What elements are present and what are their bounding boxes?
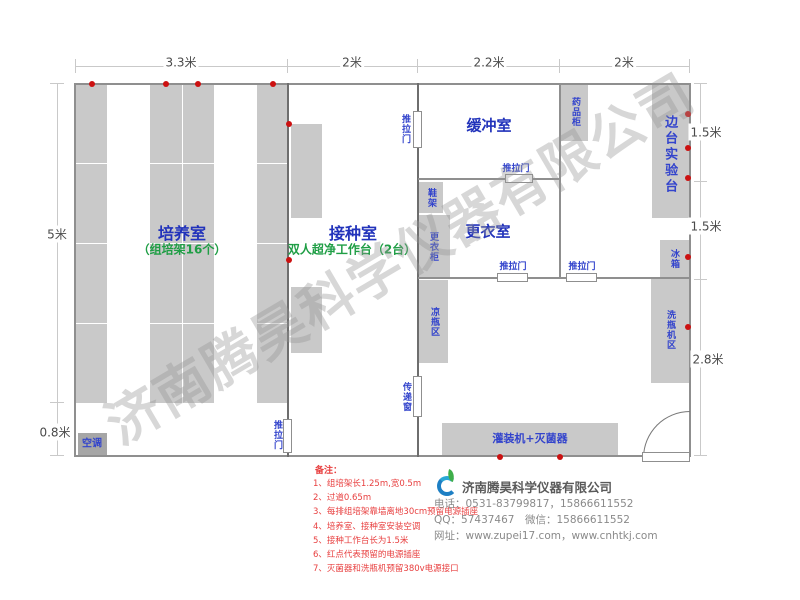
note-item-1: 1、组培架长1.25m,宽0.5m <box>313 477 421 489</box>
sliding-door-top <box>413 111 422 148</box>
power-socket-dot <box>685 111 691 117</box>
power-socket-dot <box>163 81 169 87</box>
wall-buffer-changing <box>418 178 560 180</box>
dim-tick <box>559 59 560 73</box>
note-item-2: 2、过道0.65m <box>313 491 371 503</box>
dim-line-left <box>57 84 58 456</box>
label-shoe-rack: 鞋架 <box>425 188 435 208</box>
wall-left <box>74 83 76 457</box>
wall-buffer-right <box>559 83 561 279</box>
label-sliding-door-top: 推拉门 <box>399 114 409 144</box>
label-sliding-door-changing-left: 推拉门 <box>499 263 526 273</box>
power-socket-dot <box>685 175 691 181</box>
room-sub-cultivation: （组培架16个） <box>138 241 227 258</box>
power-socket-dot <box>685 324 691 330</box>
label-sliding-door-buffer: 推拉门 <box>502 165 529 175</box>
note-item-4: 4、培养室、接种室安装空调 <box>313 520 420 532</box>
company-qq-wechat: QQ：57437467 微信：15866611552 <box>434 512 630 527</box>
company-logo-icon <box>437 470 459 494</box>
power-socket-dot <box>270 81 276 87</box>
power-socket-dot <box>685 145 691 151</box>
entry-door-leaf <box>642 452 690 462</box>
logo-swirl-icon <box>437 476 457 496</box>
dim-tick <box>694 181 707 182</box>
dim-top-4: 2米 <box>612 54 636 71</box>
power-socket-dot <box>286 121 292 127</box>
dim-top-1: 3.3米 <box>163 54 198 71</box>
sliding-door-cultivation <box>283 419 292 453</box>
label-air-conditioner: 空调 <box>82 439 102 450</box>
note-item-7: 7、灭菌器和洗瓶机预留380v电源接口 <box>313 562 459 574</box>
dim-right-3: 2.8米 <box>690 351 725 368</box>
room-label-side-bench: 边台实验台 <box>662 115 676 195</box>
power-socket-dot <box>685 254 691 260</box>
label-fridge: 冰箱 <box>668 249 678 269</box>
dim-tick <box>50 83 64 84</box>
label-wardrobe: 更衣柜 <box>427 232 437 262</box>
notes-title: 备注： <box>315 463 342 476</box>
sliding-door-changing-left <box>497 273 528 282</box>
label-sliding-door-cultivation: 推拉门 <box>271 420 281 450</box>
dim-top-2: 2米 <box>340 54 364 71</box>
room-label-changing: 更衣室 <box>465 221 510 242</box>
label-washer-area: 洗瓶机区 <box>664 310 674 350</box>
note-item-6: 6、红点代表预留的电源插座 <box>313 548 420 560</box>
sliding-door-changing-right <box>566 273 597 282</box>
culture-rack-column-1 <box>76 84 107 403</box>
dim-right-1: 1.5米 <box>688 124 723 141</box>
dim-tick <box>694 83 707 84</box>
label-filler-sterilizer: 灌装机+灭菌器 <box>492 433 567 445</box>
power-socket-dot <box>557 454 563 460</box>
power-socket-dot <box>497 454 503 460</box>
power-socket-dot <box>286 257 292 263</box>
room-label-buffer: 缓冲室 <box>466 115 511 136</box>
dim-top-3: 2.2米 <box>471 54 506 71</box>
label-sliding-door-changing-right: 推拉门 <box>568 263 595 273</box>
dim-tick <box>694 279 707 280</box>
note-item-5: 5、接种工作台长为1.5米 <box>313 534 408 546</box>
culture-rack-column-4 <box>257 84 287 403</box>
dim-tick <box>287 59 288 73</box>
power-socket-dot <box>195 81 201 87</box>
dim-tick <box>75 59 76 73</box>
clean-workbench-1 <box>291 124 322 218</box>
sliding-door-buffer <box>505 174 533 183</box>
dim-tick <box>689 59 690 73</box>
power-socket-dot <box>89 81 95 87</box>
company-name: 济南腾昊科学仪器有限公司 <box>462 477 612 496</box>
transfer-window <box>413 376 422 417</box>
wall-changing-bottom <box>418 277 690 279</box>
company-website: 网址：www.zupei17.com，www.cnhtkj.com <box>434 528 658 543</box>
label-medicine-cabinet: 药品柜 <box>569 97 579 127</box>
dim-tick <box>50 402 64 403</box>
dim-tick <box>50 455 64 456</box>
dim-tick <box>694 455 707 456</box>
dim-left-2: 0.8米 <box>37 424 72 441</box>
wall-cultivation-inoculation <box>287 83 289 457</box>
floor-plan: 3.3米 2米 2.2米 2米 5米 0.8米 1.5米 1.5米 2.8米 培… <box>0 0 800 600</box>
dim-right-2: 1.5米 <box>688 218 723 235</box>
dim-left-1: 5米 <box>45 226 69 243</box>
entry-door-swing-arc <box>643 411 690 458</box>
dim-tick <box>417 59 418 73</box>
label-transfer-window: 传递窗 <box>400 382 410 412</box>
label-cooling-area: 凉瓶区 <box>428 307 438 337</box>
company-phone: 电话：0531-83799817，15866611552 <box>434 496 633 511</box>
clean-workbench-2 <box>291 287 322 353</box>
wall-bottom <box>74 455 691 457</box>
room-sub-inoculation: 双人超净工作台（2台） <box>288 241 416 258</box>
